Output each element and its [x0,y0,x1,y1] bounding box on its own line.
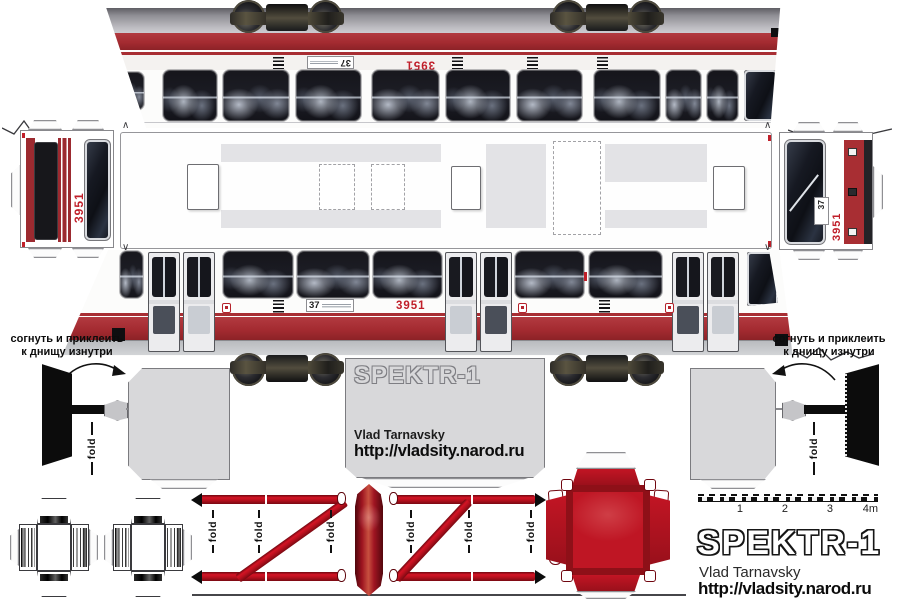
cab-windshield [744,70,778,121]
roof-gray-area [486,144,546,228]
tram-side-a: 37 3951 [88,8,790,128]
cab-windshield [747,252,778,306]
box-flap [165,524,183,571]
underbody-piece-left [128,368,230,480]
notch-icon [337,569,346,582]
ruler-tick-label: 1 [698,503,743,517]
glue-note-line2: к днищу изнутри [763,346,895,359]
glue-tab [72,248,104,258]
roof-vent-icon [273,300,284,313]
route-sign: 37 [307,56,354,69]
roof-hatch [713,166,745,210]
side-window [223,70,289,121]
cube-box-unfold [10,498,98,597]
side-window [589,251,662,298]
roof-vent-icon [597,57,608,69]
marker-box [771,28,780,37]
fold-label: fold [86,422,98,475]
end-piece-face: 37 3951 [779,132,873,250]
side-window [446,70,510,121]
glue-tab [873,166,883,218]
door-leaf [672,252,704,352]
corner-notch [561,570,573,582]
scale-ruler: 1 2 3 4m [698,494,878,520]
corner-notch [644,570,656,582]
box-face [131,524,165,571]
logo-url: http://vladsity.narod.ru [698,579,871,599]
floor-piece: SPEKTR-1 Vlad Tarnavsky http://vladsity.… [345,358,545,478]
notch-icon [337,492,346,505]
bumper-connector-nub [104,400,128,421]
car-number: 3951 [396,301,438,313]
fold-mark-icon: ∧ [764,121,771,131]
box-flap [648,495,670,565]
route-sign: 37 [814,197,829,225]
side-window [117,72,144,110]
end-piece-front: 37 3951 [777,118,889,254]
glue-note-line2: к днищу изнутри [2,346,132,359]
notch-icon [389,569,398,582]
fold-label: fold [207,510,219,553]
pantograph-frame-left: fold fold fold [193,488,351,588]
box-flap [546,495,568,565]
glue-tab [72,120,104,130]
notch-icon [389,492,398,505]
glue-tab [104,529,113,566]
sign-row [88,55,790,70]
roof-gray-band [221,210,441,228]
curved-arrow-icon [768,358,840,386]
front-windshield [785,140,825,244]
car-number: 3951 [73,157,85,223]
glue-note-line1: согнуть и приклеить [763,333,895,346]
box-flap [572,469,640,486]
box-flap [572,575,640,591]
arrow-tip-icon [191,493,202,507]
end-piece-rear: 3951 [14,118,122,252]
fold-gap [265,572,267,581]
glue-note: согнуть и приклеить к днищу изнутри [763,333,895,358]
door-leaf [707,252,739,352]
destination-scribble [310,59,338,66]
destination-scribble [322,302,351,309]
box-flap [71,524,89,571]
box-face [566,485,650,575]
box-flap [131,498,165,524]
side-window [223,251,293,298]
dashed-outline [553,141,601,235]
dashed-outline [319,164,355,210]
ruler-labels: 1 2 3 4m [698,503,878,517]
fold-mark-icon: ∧ [122,121,129,131]
side-window [296,70,361,121]
bumper-connector [72,405,104,414]
watermark-author: Vlad Tarnavsky [354,428,445,442]
red-box-unfold [530,450,686,599]
end-piece-face: 3951 [20,130,114,248]
glue-note-line1: согнуть и приклеить [2,333,132,346]
bumper-piece [845,362,879,468]
glue-tab [10,529,19,566]
corner-notch [561,479,573,491]
side-window [707,70,738,121]
cube-box-unfold [104,498,192,597]
headlight-icon [848,188,857,196]
roof-vent-icon [273,57,284,69]
front-red-panel [844,140,864,244]
door-leaf [148,252,180,352]
roof-vent-icon [452,57,463,69]
headlight-icon [848,148,857,156]
fold-label: fold [808,422,820,475]
roof-gray-band [221,144,441,162]
fold-label: fold [463,510,475,553]
box-flap [37,498,71,524]
glue-tab [793,250,825,260]
door-marker-icon [665,303,674,313]
pantograph-base-piece [355,484,383,596]
fold-tick [22,133,25,138]
red-band [88,33,790,50]
bogie [228,352,346,388]
headlight-icon [848,228,857,236]
route-number: 37 [340,58,351,68]
fold-tick [22,242,25,247]
side-window [594,70,660,121]
glue-tab [362,478,528,488]
glue-tab [89,529,98,566]
roof-gray-band [605,210,707,228]
glue-note: согнуть и приклеить к днищу изнутри [2,333,132,358]
roof-hatch [187,164,219,210]
glue-tab [793,122,825,132]
dashed-outline [371,164,405,210]
ruler-bar [698,497,878,502]
connector-line [776,408,782,410]
glue-tab [833,250,863,260]
watermark-url: http://vladsity.narod.ru [354,442,524,461]
arrow-tip-icon [191,570,202,584]
roof-vent-icon [527,57,538,69]
ruler-dashed-line [698,494,878,496]
fold-gap [471,495,473,504]
bumper-piece [42,362,72,468]
route-number: 37 [817,200,826,209]
papercraft-sheet: 37 3951 [0,0,897,599]
frame-bar [201,495,341,504]
side-window [517,70,582,121]
tram-side-b: 37 3951 [50,250,795,356]
ruler-tick-label: 3 [788,503,833,517]
side-window [373,251,442,298]
corner-notch [644,479,656,491]
door-leaf [445,252,477,352]
glue-tab [28,120,62,130]
box-flap [113,524,131,571]
fold-tick [768,135,771,141]
bogie [548,352,666,388]
box-flap [131,571,165,597]
fold-label: fold [405,510,417,553]
side-window [666,70,701,121]
door-marker-icon [518,303,527,313]
route-sign: 37 [306,299,354,312]
bumper-connector-nub [782,400,806,421]
fold-label: fold [253,510,265,553]
marker-box [112,85,125,97]
side-window [163,70,217,121]
bogie [228,0,346,34]
car-number: 3951 [393,58,435,70]
roof-edge-line [88,122,790,123]
roof-plan [120,132,772,249]
box-flap [37,571,71,597]
ruler-tick-label: 4m [833,503,878,517]
skirt-band [88,8,790,33]
box-face [37,524,71,571]
roof-hatch [451,166,481,210]
underbody-piece-right [690,368,776,480]
box-flap [19,524,37,571]
frame-bar [395,572,535,581]
glue-tab [183,529,192,566]
rear-red-stripes [58,138,71,242]
side-window [515,251,584,298]
fold-label: fold [325,510,337,553]
frame-bar [201,572,341,581]
ruler-tick-label: 2 [743,503,788,517]
car-number: 3951 [832,189,843,241]
bumper-connector [804,405,845,414]
door-leaf [480,252,512,352]
front-dark-panel [864,140,872,244]
glue-tab [576,452,636,469]
rear-window [34,142,58,240]
rear-windshield [85,140,110,240]
fold-tick [584,272,587,281]
roof-vent-icon [599,300,610,313]
glue-tab [833,122,863,132]
side-window [297,251,369,298]
glue-tab [576,591,636,599]
glue-tab [700,479,766,489]
roof-gray-band [605,144,707,182]
door-marker-icon [222,303,231,313]
route-number: 37 [309,301,320,311]
bogie [548,0,666,34]
cab-side-window [120,251,143,298]
fold-gap [265,495,267,504]
logo-title: SPEKTR-1 [697,524,881,563]
side-window [372,70,439,121]
pantograph-frame-right: fold fold fold [383,488,545,588]
fold-gap [471,572,473,581]
glue-tab [28,248,62,258]
watermark-title: SPEKTR-1 [354,362,481,390]
door-leaf [183,252,215,352]
